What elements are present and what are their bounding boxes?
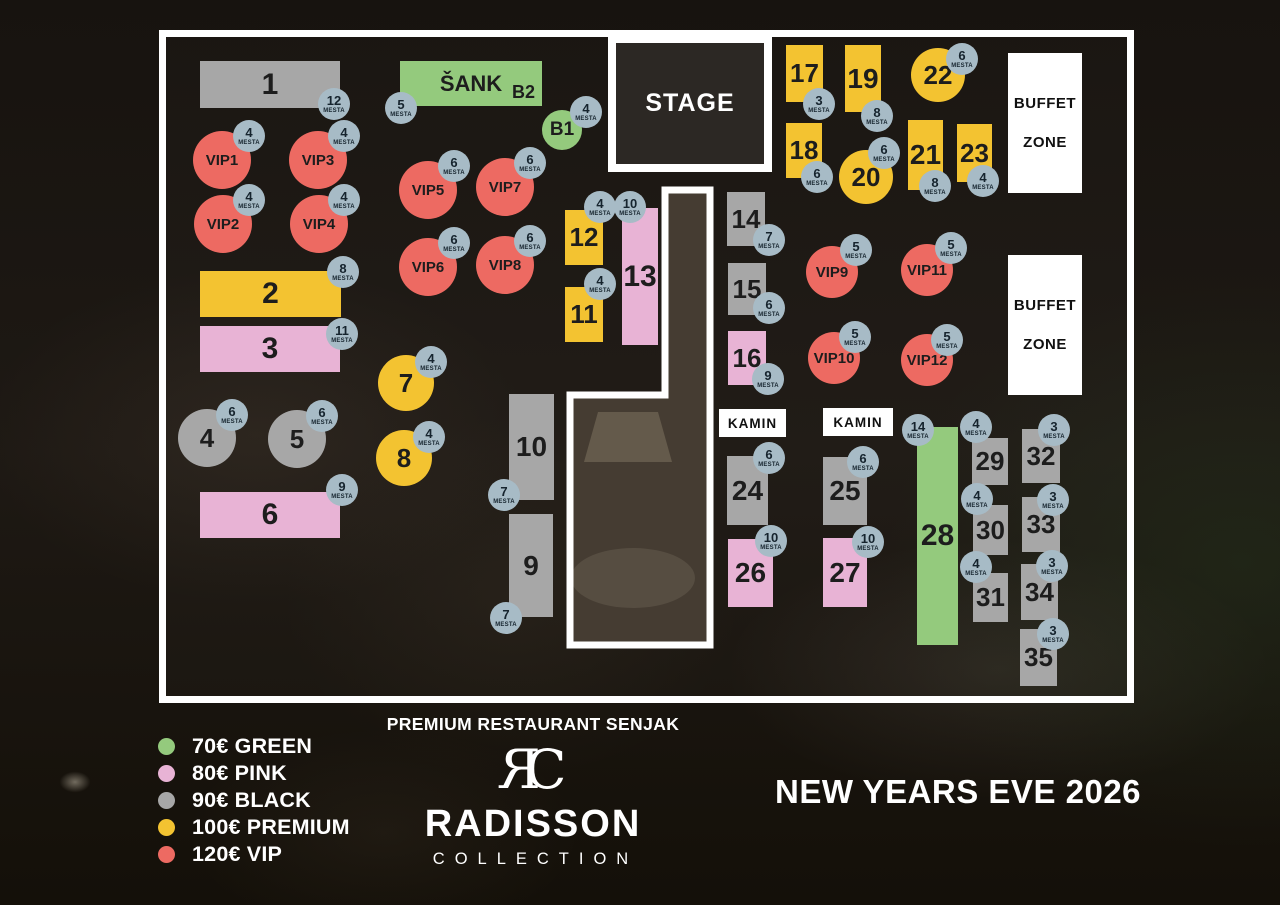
buffet-zone-1-label-line: ZONE <box>1023 134 1067 151</box>
table-label: VIP7 <box>489 179 522 196</box>
table-label: 11 <box>570 299 598 330</box>
seats-unit: MESTA <box>575 116 597 122</box>
seats-unit: MESTA <box>760 545 782 551</box>
gray-dot-icon <box>158 792 175 809</box>
seats-unit: MESTA <box>589 288 611 294</box>
table-13[interactable]: 13 <box>622 208 658 345</box>
seats-count: 4 <box>596 274 603 287</box>
seats-badge-vip8: 6MESTA <box>514 225 546 257</box>
brand-name: RADISSON <box>350 803 716 846</box>
seats-count: 4 <box>427 352 434 365</box>
seats-count: 4 <box>972 417 979 430</box>
table-label: 25 <box>829 475 860 507</box>
seats-unit: MESTA <box>443 170 465 176</box>
seats-badge-7: 4MESTA <box>415 346 447 378</box>
seats-count: 4 <box>340 190 347 203</box>
seats-unit: MESTA <box>1042 504 1064 510</box>
seats-badge-13: 10MESTA <box>614 191 646 223</box>
seats-badge-15: 6MESTA <box>753 292 785 324</box>
kamin-2: KAMIN <box>823 408 893 436</box>
seats-count: 9 <box>338 480 345 493</box>
seats-count: 10 <box>764 531 778 544</box>
seats-badge-vip7: 6MESTA <box>514 147 546 179</box>
seats-count: 5 <box>851 327 858 340</box>
monogram-letter: R <box>500 738 541 801</box>
table-28[interactable]: 28 <box>917 427 958 645</box>
seats-count: 7 <box>502 608 509 621</box>
table-label: 2 <box>262 277 279 311</box>
pink-dot-icon <box>158 765 175 782</box>
seats-unit: MESTA <box>332 276 354 282</box>
seats-badge-19: 8MESTA <box>861 100 893 132</box>
seats-badge-1: 12MESTA <box>318 88 350 120</box>
table-29[interactable]: 29 <box>972 438 1008 485</box>
table-label: 3 <box>262 332 279 366</box>
seats-unit: MESTA <box>758 244 780 250</box>
seats-unit: MESTA <box>936 344 958 350</box>
table-label: 9 <box>523 550 539 582</box>
seats-unit: MESTA <box>808 108 830 114</box>
seats-badge-vip3: 4MESTA <box>328 120 360 152</box>
buffet-zone-2-label-line: BUFFET <box>1014 297 1076 314</box>
seats-count: 6 <box>813 167 820 180</box>
seats-unit: MESTA <box>852 466 874 472</box>
seats-badge-24: 6MESTA <box>753 442 785 474</box>
seats-count: 5 <box>397 98 404 111</box>
red-dot-icon <box>158 846 175 863</box>
table-label: VIP9 <box>816 264 849 281</box>
seats-unit: MESTA <box>758 312 780 318</box>
seats-badge-10: 7MESTA <box>488 479 520 511</box>
seats-badge-35: 3MESTA <box>1037 618 1069 650</box>
seats-unit: MESTA <box>418 441 440 447</box>
seats-badge-b1: 4MESTA <box>570 96 602 128</box>
seats-count: 14 <box>911 420 925 433</box>
legend-label: 70€ GREEN <box>192 734 312 759</box>
seats-count: 5 <box>852 240 859 253</box>
seats-unit: MESTA <box>619 211 641 217</box>
seats-badge-vip10: 5MESTA <box>839 321 871 353</box>
table-sublabel: B2 <box>512 82 535 103</box>
table-label: 24 <box>732 475 763 507</box>
table-label: 30 <box>976 515 1005 546</box>
seats-badge-21: 8MESTA <box>919 170 951 202</box>
buffet-zone-2: BUFFETZONE <box>1008 255 1082 395</box>
seats-unit: MESTA <box>806 181 828 187</box>
seats-badge-12: 4MESTA <box>584 191 616 223</box>
legend-item-pink: 80€ PINK <box>158 760 350 787</box>
seats-unit: MESTA <box>311 420 333 426</box>
seats-unit: MESTA <box>965 431 987 437</box>
seats-badge-8: 4MESTA <box>413 421 445 453</box>
seats-count: 12 <box>327 94 341 107</box>
table-label: 29 <box>976 446 1005 477</box>
seats-badge-26: 10MESTA <box>755 525 787 557</box>
seats-unit: MESTA <box>907 434 929 440</box>
buffet-zone-2-label-line: ZONE <box>1023 336 1067 353</box>
seats-count: 6 <box>318 406 325 419</box>
seats-badge-9: 7MESTA <box>490 602 522 634</box>
seats-unit: MESTA <box>493 499 515 505</box>
seats-badge-29: 4MESTA <box>960 411 992 443</box>
seats-count: 10 <box>861 532 875 545</box>
seats-unit: MESTA <box>951 63 973 69</box>
seats-badge-16: 9MESTA <box>752 363 784 395</box>
table-label: 27 <box>829 557 860 589</box>
seats-count: 8 <box>931 176 938 189</box>
seats-unit: MESTA <box>1042 638 1064 644</box>
seats-badge-33: 3MESTA <box>1037 484 1069 516</box>
buffet-zone-1-label-line: BUFFET <box>1014 95 1076 112</box>
seats-badge-vip4: 4MESTA <box>328 184 360 216</box>
seats-badge-vip1: 4MESTA <box>233 120 265 152</box>
seats-badge-vip11: 5MESTA <box>935 232 967 264</box>
seats-unit: MESTA <box>238 204 260 210</box>
table-label: 8 <box>397 443 411 474</box>
seats-badge-vip12: 5MESTA <box>931 324 963 356</box>
seats-badge-34: 3MESTA <box>1036 550 1068 582</box>
seats-badge-5: 6MESTA <box>306 400 338 432</box>
seats-count: 4 <box>425 427 432 440</box>
seats-count: 8 <box>339 262 346 275</box>
seats-badge-4: 6MESTA <box>216 399 248 431</box>
seats-unit: MESTA <box>333 204 355 210</box>
seats-badge-vip2: 4MESTA <box>233 184 265 216</box>
seats-count: 11 <box>335 324 349 337</box>
floorplan-canvas: STAGEBUFFETZONEBUFFETZONEKAMINKAMIN 112M… <box>0 0 1280 905</box>
table-label: VIP11 <box>907 262 947 279</box>
seats-count: 6 <box>880 143 887 156</box>
seats-count: 6 <box>450 156 457 169</box>
seats-count: 3 <box>1049 624 1056 637</box>
seats-badge-2: 8MESTA <box>327 256 359 288</box>
table-label: VIP5 <box>412 182 445 199</box>
seats-count: 6 <box>228 405 235 418</box>
seats-badge-20: 6MESTA <box>868 137 900 169</box>
seats-unit: MESTA <box>420 366 442 372</box>
seats-unit: MESTA <box>940 252 962 258</box>
seats-unit: MESTA <box>844 341 866 347</box>
green-dot-icon <box>158 738 175 755</box>
table-label: B1 <box>550 119 574 141</box>
stage: STAGE <box>608 35 772 172</box>
table-label: 23 <box>960 138 989 169</box>
seats-unit: MESTA <box>965 571 987 577</box>
seats-count: 4 <box>245 190 252 203</box>
table-label: 1 <box>262 68 279 102</box>
brand-subtitle: COLLECTION <box>350 850 716 869</box>
table-2[interactable]: 2 <box>200 271 341 317</box>
table-label: VIP8 <box>489 257 522 274</box>
seats-count: 6 <box>526 153 533 166</box>
seats-badge-vip6: 6MESTA <box>438 227 470 259</box>
seats-badge-32: 3MESTA <box>1038 414 1070 446</box>
seats-count: 8 <box>873 106 880 119</box>
seats-badge-27: 10MESTA <box>852 526 884 558</box>
seats-badge-30: 4MESTA <box>961 483 993 515</box>
seats-unit: MESTA <box>519 167 541 173</box>
table-label: VIP3 <box>302 152 335 169</box>
seats-count: 4 <box>245 126 252 139</box>
seats-count: 6 <box>958 49 965 62</box>
kamin-1-label: KAMIN <box>728 416 777 431</box>
legend-item-yellow: 100€ PREMIUM <box>158 814 350 841</box>
stage-label: STAGE <box>645 89 734 118</box>
seats-unit: MESTA <box>221 419 243 425</box>
seats-count: 6 <box>765 298 772 311</box>
seats-unit: MESTA <box>519 245 541 251</box>
seats-badge-sank-b2: 5MESTA <box>385 92 417 124</box>
buffet-zone-1: BUFFETZONE <box>1008 53 1082 193</box>
seats-count: 4 <box>973 489 980 502</box>
legend-label: 120€ VIP <box>192 842 282 867</box>
seats-badge-6: 9MESTA <box>326 474 358 506</box>
legend-item-red: 120€ VIP <box>158 841 350 868</box>
seats-unit: MESTA <box>495 622 517 628</box>
seats-count: 9 <box>764 369 771 382</box>
seats-unit: MESTA <box>333 140 355 146</box>
table-label: VIP4 <box>303 216 336 233</box>
seats-unit: MESTA <box>857 546 879 552</box>
table-6[interactable]: 6 <box>200 492 340 538</box>
buffet-zone-1-label: BUFFETZONE <box>1014 95 1076 151</box>
seats-count: 3 <box>815 94 822 107</box>
seats-unit: MESTA <box>443 247 465 253</box>
seats-count: 10 <box>623 197 637 210</box>
seats-badge-11: 4MESTA <box>584 268 616 300</box>
kamin-2-label: KAMIN <box>833 415 882 430</box>
table-label: 13 <box>623 260 656 294</box>
seats-unit: MESTA <box>331 338 353 344</box>
branding-block: PREMIUM RESTAURANT SENJAK RC RADISSON CO… <box>350 714 716 869</box>
seats-badge-14: 7MESTA <box>753 224 785 256</box>
seats-badge-22: 6MESTA <box>946 43 978 75</box>
seats-unit: MESTA <box>966 503 988 509</box>
seats-count: 6 <box>859 452 866 465</box>
buffet-zone-2-label: BUFFETZONE <box>1014 297 1076 353</box>
table-label: 26 <box>735 557 766 589</box>
seats-unit: MESTA <box>924 190 946 196</box>
seats-count: 4 <box>979 171 986 184</box>
table-label: 5 <box>290 424 304 455</box>
seats-badge-3: 11MESTA <box>326 318 358 350</box>
seats-count: 3 <box>1050 420 1057 433</box>
table-label: 4 <box>200 423 214 454</box>
seats-badge-23: 4MESTA <box>967 165 999 197</box>
lamp-silhouette <box>584 412 672 462</box>
table-label: 12 <box>570 222 599 253</box>
seats-count: 3 <box>1048 556 1055 569</box>
seats-unit: MESTA <box>589 211 611 217</box>
seats-badge-18: 6MESTA <box>801 161 833 193</box>
seats-count: 5 <box>943 330 950 343</box>
legend-item-green: 70€ GREEN <box>158 733 350 760</box>
seats-unit: MESTA <box>757 383 779 389</box>
table-label: 19 <box>847 63 878 95</box>
table-label: ŠANK <box>440 71 502 97</box>
seats-count: 4 <box>972 557 979 570</box>
legend-item-gray: 90€ BLACK <box>158 787 350 814</box>
seats-unit: MESTA <box>323 108 345 114</box>
table-label: 17 <box>790 58 819 89</box>
table-sank-b2[interactable]: ŠANKB2 <box>400 61 542 106</box>
table-label: VIP6 <box>412 259 445 276</box>
table-label: 28 <box>921 519 954 553</box>
seats-unit: MESTA <box>331 494 353 500</box>
seats-badge-28: 14MESTA <box>902 414 934 446</box>
table-label: VIP10 <box>814 350 855 367</box>
yellow-dot-icon <box>158 819 175 836</box>
seats-count: 6 <box>765 448 772 461</box>
legend-label: 90€ BLACK <box>192 788 311 813</box>
table-label: VIP1 <box>206 152 239 169</box>
table-9[interactable]: 9 <box>509 514 553 617</box>
seats-count: 5 <box>947 238 954 251</box>
seats-badge-vip5: 6MESTA <box>438 150 470 182</box>
restaurant-name: PREMIUM RESTAURANT SENJAK <box>350 714 716 735</box>
table-label: 10 <box>516 431 547 463</box>
price-legend: 70€ GREEN80€ PINK90€ BLACK100€ PREMIUM12… <box>158 733 350 868</box>
table-label: VIP2 <box>207 216 240 233</box>
seats-unit: MESTA <box>845 254 867 260</box>
seats-count: 3 <box>1049 490 1056 503</box>
seats-unit: MESTA <box>390 112 412 118</box>
table-silhouette <box>571 548 695 608</box>
seats-unit: MESTA <box>758 462 780 468</box>
seats-count: 4 <box>340 126 347 139</box>
seats-badge-17: 3MESTA <box>803 88 835 120</box>
event-title: NEW YEARS EVE 2026 <box>775 773 1141 811</box>
table-label: 21 <box>910 139 941 171</box>
seats-unit: MESTA <box>1043 434 1065 440</box>
seats-unit: MESTA <box>238 140 260 146</box>
seats-badge-vip9: 5MESTA <box>840 234 872 266</box>
seats-count: 4 <box>582 102 589 115</box>
seats-count: 7 <box>500 485 507 498</box>
legend-label: 80€ PINK <box>192 761 287 786</box>
seats-count: 7 <box>765 230 772 243</box>
legend-label: 100€ PREMIUM <box>192 815 350 840</box>
table-label: 7 <box>399 368 413 399</box>
seats-count: 6 <box>526 231 533 244</box>
seats-count: 4 <box>596 197 603 210</box>
table-label: 31 <box>976 582 1005 613</box>
seats-badge-25: 6MESTA <box>847 446 879 478</box>
radisson-monogram-logo: RC <box>350 737 716 801</box>
seats-unit: MESTA <box>873 157 895 163</box>
kamin-1: KAMIN <box>719 409 786 437</box>
table-3[interactable]: 3 <box>200 326 340 372</box>
table-label: 6 <box>262 498 279 532</box>
seats-unit: MESTA <box>972 185 994 191</box>
seats-count: 6 <box>450 233 457 246</box>
seats-badge-31: 4MESTA <box>960 551 992 583</box>
seats-unit: MESTA <box>1041 570 1063 576</box>
seats-unit: MESTA <box>866 120 888 126</box>
